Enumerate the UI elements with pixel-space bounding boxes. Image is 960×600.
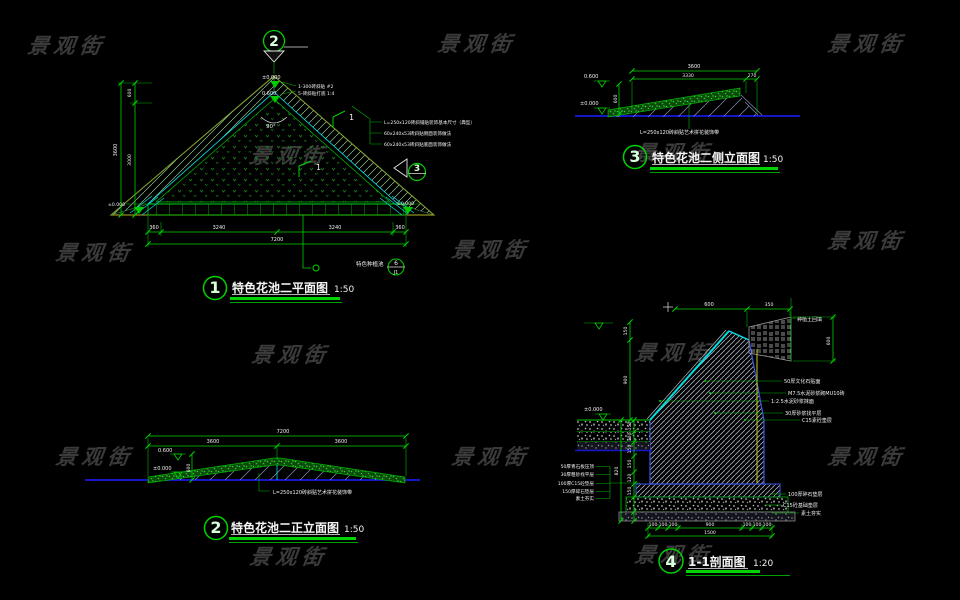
dim-text: 1500	[704, 530, 716, 536]
view-scale: 1:50	[334, 285, 354, 295]
section-upper-vdim: 150 900	[623, 319, 633, 422]
elev-zero: ±0.000	[153, 466, 172, 472]
dim-text: 350	[765, 302, 774, 308]
apex-note-1: 1-300砖斜贴 #2	[298, 83, 333, 90]
dim-text: 270	[748, 73, 757, 79]
view-marker-2: 2	[264, 31, 309, 75]
view-scale: 1:50	[763, 155, 783, 165]
label: C15素砼垫层	[802, 417, 832, 424]
view-title-text: 特色花池二平面图	[232, 280, 328, 295]
dim-text: 100	[743, 522, 752, 528]
leader-label: 特色种植池	[356, 260, 384, 268]
label: 50厚青石板压顶	[561, 463, 595, 470]
dim-text: 820	[614, 467, 620, 476]
corner-elev-left: ±0.000	[108, 202, 125, 208]
dim-text: 150	[623, 327, 629, 336]
dim-text: 7200	[271, 237, 284, 243]
view-title-text: 特色花池二正立面图	[231, 520, 339, 535]
front-elev-note: L=250x120砖斜贴艺术拼花装饰带	[273, 489, 352, 496]
view-marker-2-number: 2	[269, 34, 279, 50]
label: 100厚C15砼垫层	[558, 480, 595, 487]
cad-drawing: 2 ±0.000 0.600	[0, 0, 960, 600]
label: C15砼基础垫层	[783, 502, 818, 509]
view-number: 4	[665, 552, 676, 571]
axis-marker	[663, 302, 673, 312]
planting-pocket	[749, 317, 791, 361]
apex-note-2: 5-砖斜贴打底 1:4	[298, 90, 334, 97]
plan-right-notes: L=250x120砖斜铺贴装饰基本尺寸（典型） 60x240x53砖斜贴侧面装饰…	[352, 106, 475, 148]
view-scale: 1:50	[344, 525, 364, 535]
section-bottom-dims: 100 100 100 900 100 100 100 1500	[645, 522, 774, 539]
view-marker-3-number: 3	[414, 164, 420, 174]
note-line: 60x240x53砖斜贴侧面装饰做法	[384, 130, 452, 137]
note-line: 60x240x53砖斜贴底面装饰做法	[384, 141, 452, 148]
side-elev-note: L=250x120砖斜贴艺术拼花装饰带	[640, 129, 719, 136]
label: 150厚碎石垫层	[562, 488, 594, 495]
dim-text: 3000	[127, 154, 133, 166]
label: 素土夯实	[576, 495, 595, 502]
elev-zero: ±0.000	[584, 407, 603, 413]
view-marker-3: 3	[394, 159, 426, 181]
view-title-1: 1 特色花池二平面图 1:50	[204, 277, 355, 303]
label: 100厚碎石垫层	[788, 491, 823, 498]
dim-text: 150	[627, 487, 633, 496]
keynote-1: 1	[349, 113, 354, 122]
front-elevation-view: 7200 3600 3600 0.600 ±0.000 600 L=250x12…	[85, 429, 420, 543]
dim-text: 150	[627, 460, 633, 469]
plan-view: 2 ±0.000 0.600	[108, 31, 475, 303]
dim-text: 100	[627, 433, 633, 442]
dim-text: 900	[706, 522, 715, 528]
corner-elev-right: ±0.000	[397, 201, 414, 207]
dim-text: 3330	[682, 73, 694, 79]
dim-text: 100	[649, 522, 658, 528]
view-title-2: 2 特色花池二正立面图 1:50	[205, 517, 365, 543]
view-number: 3	[629, 147, 640, 166]
dim-text: 3600	[335, 439, 348, 445]
plan-detail-leader: 特色种植池 6 J1	[303, 215, 405, 276]
angle-label: 90°	[266, 124, 276, 130]
plan-paver-band	[148, 204, 406, 215]
view-number: 1	[209, 278, 220, 297]
label: 30厚砂浆找平层	[785, 410, 821, 417]
dim-text: 7200	[277, 429, 290, 435]
view-title-4: 4 1-1剖面图 1:20	[659, 549, 790, 576]
side-elevation-view: 3600 3330 270 0.600 ±0.000 600 L=250x1	[575, 64, 800, 173]
view-title-text: 1-1剖面图	[688, 554, 746, 569]
dim-text: 600	[186, 464, 192, 473]
dim-text: 3240	[213, 225, 226, 231]
bubble-number: 6	[394, 260, 398, 267]
dim-text: 600	[613, 95, 619, 104]
dim-text: 100	[763, 522, 772, 528]
dim-text: 3600	[207, 439, 220, 445]
keynote-2: 1	[316, 163, 321, 172]
view-scale: 1:20	[753, 559, 773, 569]
view-number: 2	[210, 518, 221, 537]
view-title-3: 3 特色花池二侧立面图 1:50	[624, 146, 784, 173]
note-line: L=250x120砖斜铺贴装饰基本尺寸（典型）	[384, 119, 475, 126]
ground-layers	[575, 420, 652, 451]
apex-elev-upper: ±0.000	[262, 75, 281, 81]
elev-top: 0.600	[158, 448, 172, 454]
plan-bottom-dims: 360 3240 3240 360 7200	[145, 216, 408, 247]
cad-drawing-canvas: 景观街 景观街 景观街 景观街 景观街 景观街 景观街 景观街 景观街 景观街 …	[0, 0, 960, 600]
keynote-bracket	[333, 111, 345, 128]
dim-text: 150	[627, 445, 633, 454]
label: M7.5水泥砂浆砌MU10砖	[788, 390, 845, 397]
dim-text: 100	[669, 522, 678, 528]
dim-text: 100	[659, 522, 668, 528]
footing-slab	[626, 497, 788, 512]
dim-text: 150	[627, 422, 633, 431]
elev-zero: ±0.000	[580, 101, 599, 107]
dim-text: 360	[149, 225, 159, 231]
dim-text: 360	[395, 225, 405, 231]
footing-bed	[619, 512, 795, 521]
label: 50厚文化石贴面	[784, 378, 820, 385]
view-title-text: 特色花池二侧立面图	[652, 150, 760, 165]
section-view: 600 350 150 900 种植土回填	[558, 298, 845, 576]
footing-step	[636, 484, 780, 497]
dim-text: 600	[127, 89, 133, 98]
elev-top: 0.600	[584, 74, 598, 80]
label: 1:2.5水泥砂浆抹面	[771, 398, 814, 405]
wall-body	[650, 331, 764, 484]
dim-text: 3240	[329, 225, 342, 231]
label: 30厚粗砂找平层	[561, 471, 595, 478]
dim-text: 100	[753, 522, 762, 528]
dim-text: 600	[704, 302, 714, 308]
dim-text: 120	[627, 474, 633, 483]
dim-text: 900	[623, 376, 629, 385]
label: 素土夯实	[801, 510, 821, 517]
dim-text: 3600	[113, 144, 119, 157]
bubble-sheet: J1	[393, 270, 399, 276]
dim-text: 3600	[688, 64, 701, 70]
dim-text: 600	[826, 337, 832, 346]
